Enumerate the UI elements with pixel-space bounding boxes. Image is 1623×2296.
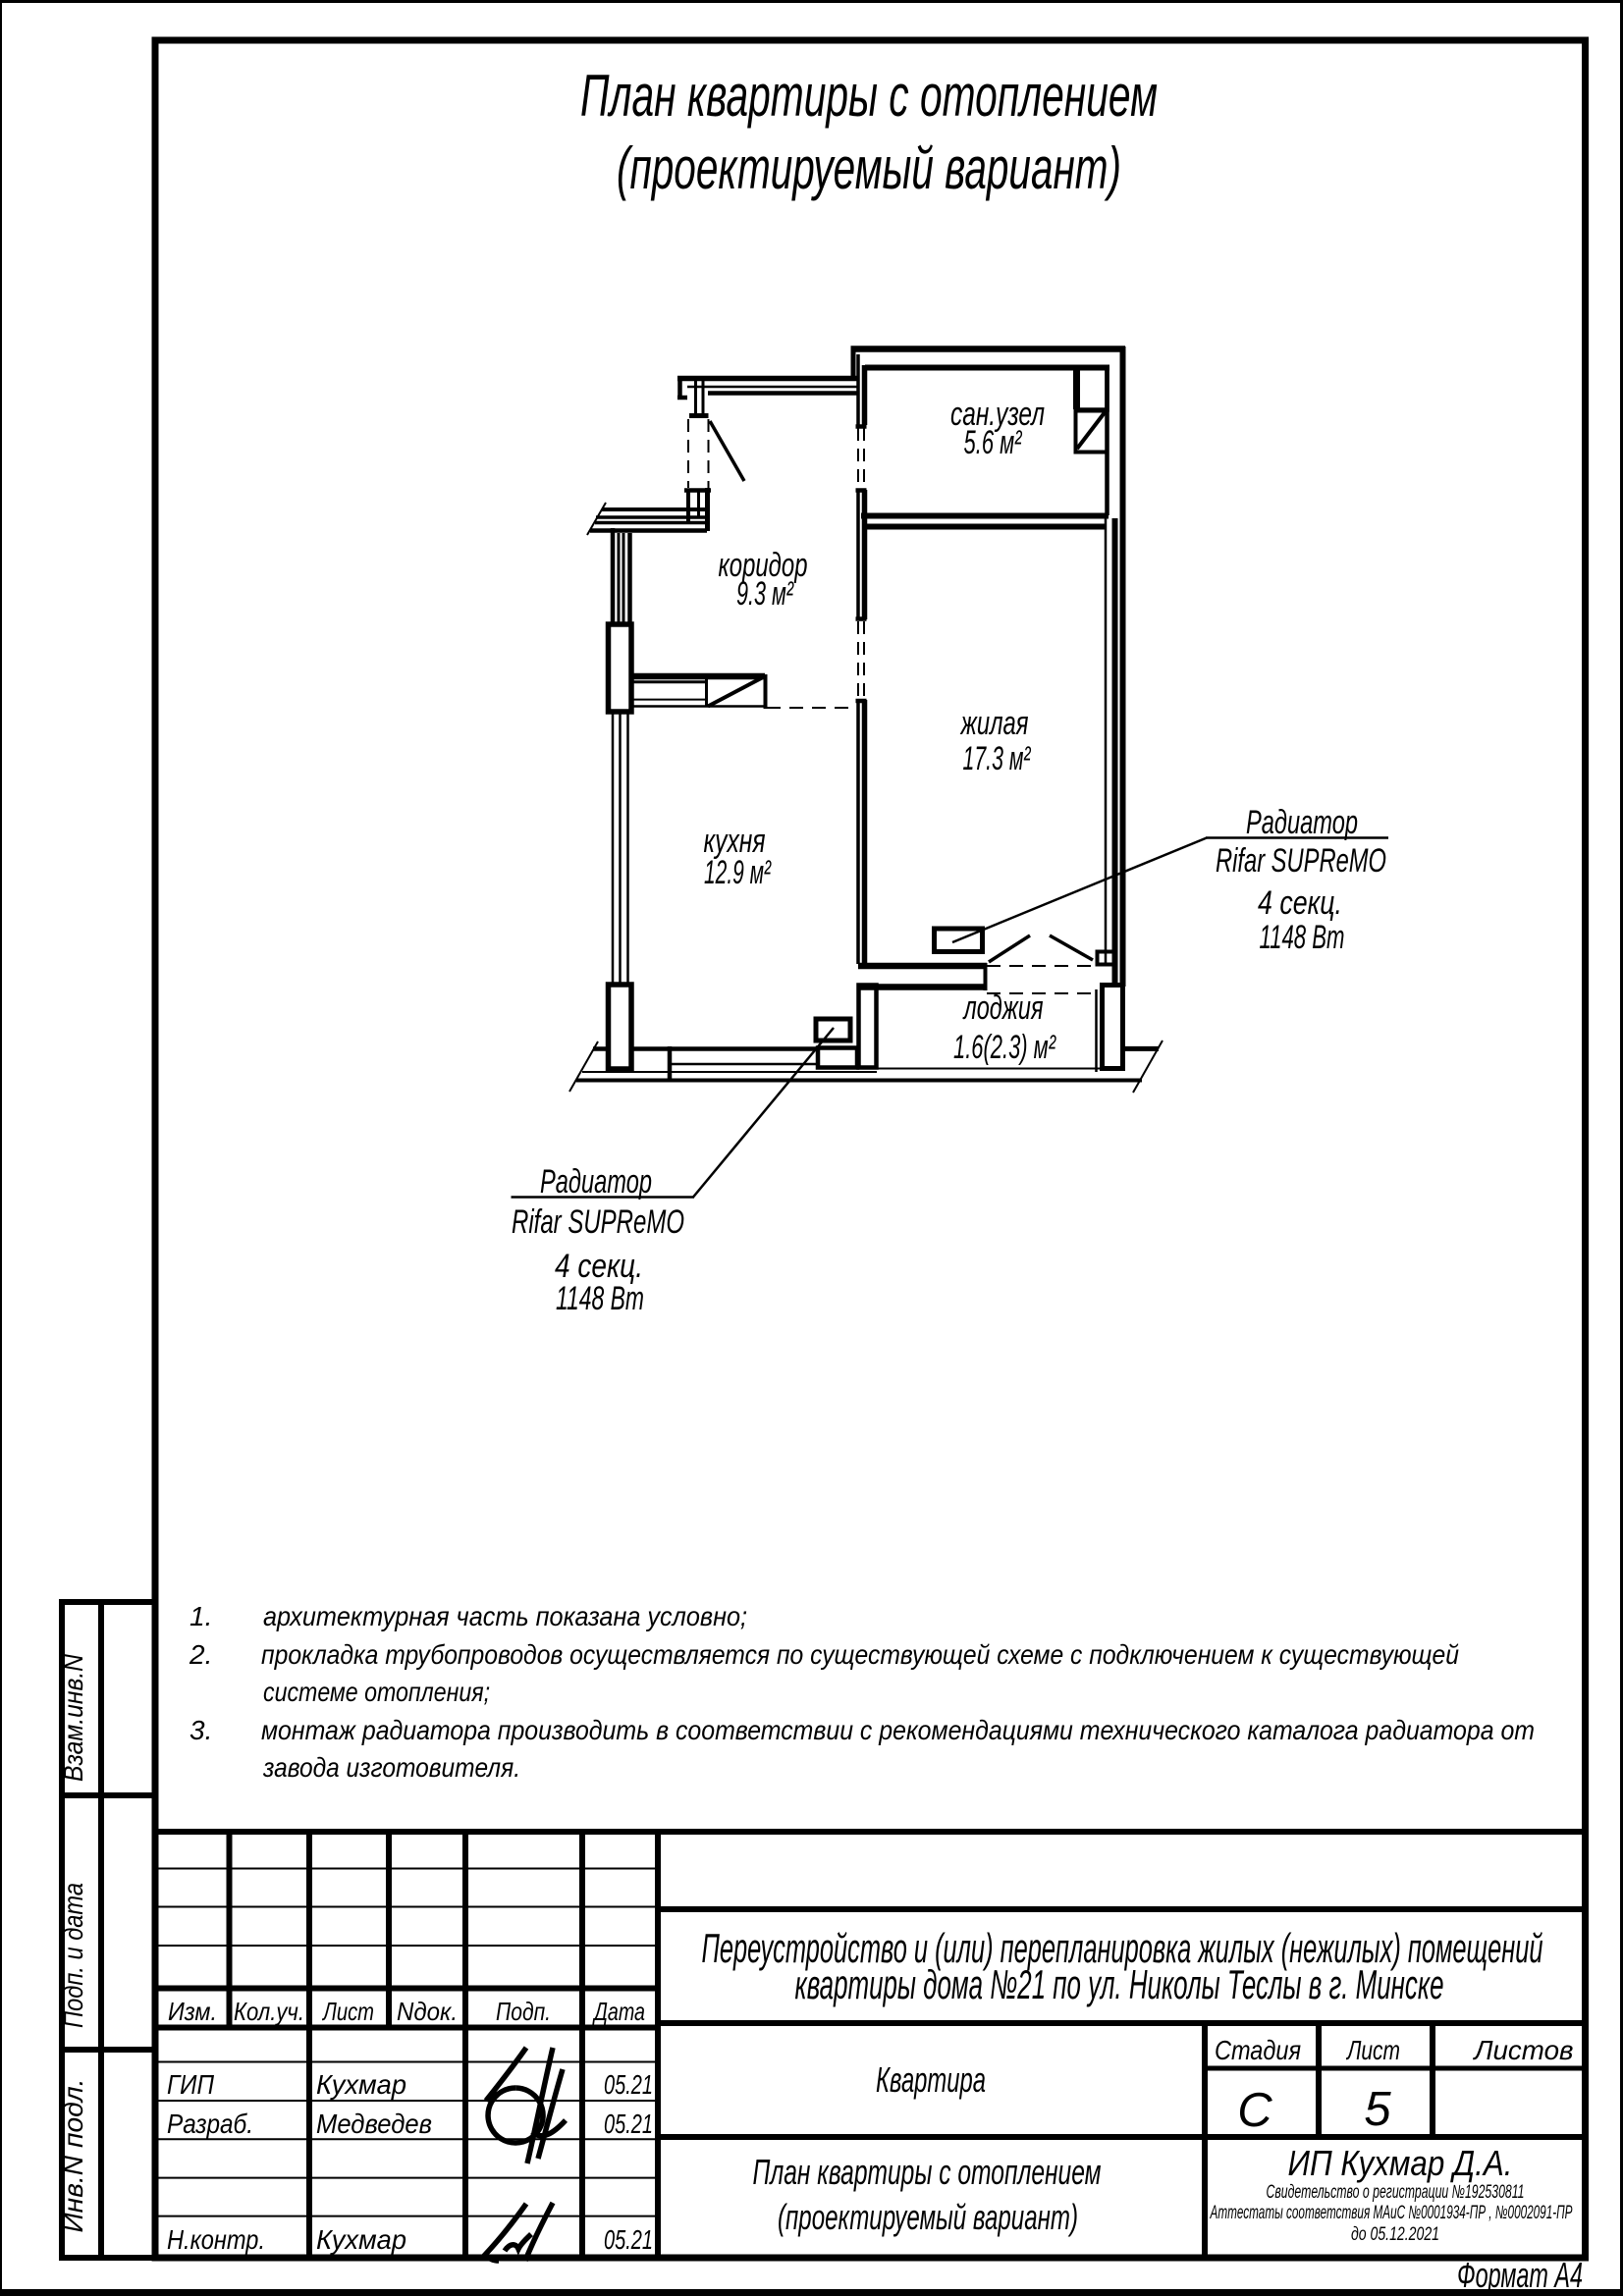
svg-text:монтаж радиатора производить в: монтаж радиатора производить в соответст… [261,1715,1535,1745]
svg-text:1.6(2.3) м²: 1.6(2.3) м² [953,1029,1056,1066]
svg-text:Кухмар: Кухмар [316,2224,406,2255]
svg-text:1148 Вт: 1148 Вт [556,1280,644,1317]
svg-text:12.9 м²: 12.9 м² [704,854,772,891]
svg-text:Дата: Дата [592,1997,645,2026]
svg-text:Медведев: Медведев [316,2109,432,2139]
svg-text:Радиатор: Радиатор [1246,804,1358,841]
svg-text:2.: 2. [189,1639,212,1670]
svg-text:9.3 м²: 9.3 м² [736,575,794,613]
svg-text:План квартиры с отоплением: План квартиры с отоплением [580,63,1158,129]
svg-text:(проектируемый вариант): (проектируемый вариант) [617,135,1121,201]
svg-text:системе отопления;: системе отопления; [263,1677,490,1707]
svg-text:4 секц.: 4 секц. [1258,884,1342,922]
svg-text:С: С [1237,2084,1272,2137]
svg-text:Квартира: Квартира [876,2059,986,2100]
svg-text:прокладка трубопроводов осущес: прокладка трубопроводов осуществляется п… [261,1639,1459,1670]
svg-text:лоджия: лоджия [962,989,1043,1027]
svg-text:Н.контр.: Н.контр. [167,2224,265,2255]
svg-text:завода изготовителя.: завода изготовителя. [262,1752,520,1783]
svg-text:5: 5 [1364,2083,1391,2136]
svg-text:Кухмар: Кухмар [316,2069,406,2100]
svg-text:Nдок.: Nдок. [397,1997,458,2026]
svg-text:Rifar SUPReMO: Rifar SUPReMO [512,1203,684,1241]
svg-text:Лист: Лист [1346,2035,1400,2065]
svg-text:05.21: 05.21 [604,2069,653,2100]
svg-text:Rifar SUPReMO: Rifar SUPReMO [1216,842,1386,880]
svg-text:Подп. и дата: Подп. и дата [58,1883,88,2028]
svg-text:ГИП: ГИП [167,2069,215,2100]
svg-text:до 05.12.2021: до 05.12.2021 [1351,2224,1439,2245]
svg-text:17.3 м²: 17.3 м² [963,740,1032,777]
svg-text:Стадия: Стадия [1215,2035,1301,2065]
svg-text:План квартиры с отоплением: План квартиры с отоплением [753,2152,1102,2192]
svg-text:архитектурная часть показана у: архитектурная часть показана условно; [263,1601,747,1631]
svg-text:05.21: 05.21 [604,2109,653,2139]
svg-text:ИП Кухмар Д.А.: ИП Кухмар Д.А. [1288,2143,1513,2183]
svg-text:квартиры дома №21 по ул. Никол: квартиры дома №21 по ул. Николы Теслы в … [795,1961,1444,2007]
svg-text:Разраб.: Разраб. [167,2109,253,2139]
svg-text:Лист: Лист [321,1997,374,2026]
svg-text:Формат А4: Формат А4 [1457,2255,1583,2295]
svg-text:3.: 3. [189,1715,212,1745]
svg-text:Изм.: Изм. [168,1997,217,2026]
svg-text:жилая: жилая [959,705,1028,742]
svg-text:Подп.: Подп. [496,1997,551,2026]
svg-text:Взам.инв.N: Взам.инв.N [58,1653,88,1782]
svg-text:(проектируемый вариант): (проектируемый вариант) [778,2197,1078,2237]
svg-text:5.6 м²: 5.6 м² [964,424,1023,461]
svg-text:1.: 1. [189,1601,212,1631]
svg-text:Кол.уч.: Кол.уч. [234,1997,304,2026]
svg-text:1148 Вт: 1148 Вт [1260,919,1345,956]
svg-text:05.21: 05.21 [604,2224,653,2255]
svg-text:Листов: Листов [1473,2035,1574,2065]
svg-text:Свидетельство о регистрации №: Свидетельство о регистрации №192530811 [1267,2182,1525,2203]
svg-text:Радиатор: Радиатор [540,1163,652,1201]
svg-text:Аттестаты соответствия МАиС №: Аттестаты соответствия МАиС №0001934-ПР … [1210,2203,1573,2223]
svg-text:Инв.N подл.: Инв.N подл. [58,2079,88,2233]
